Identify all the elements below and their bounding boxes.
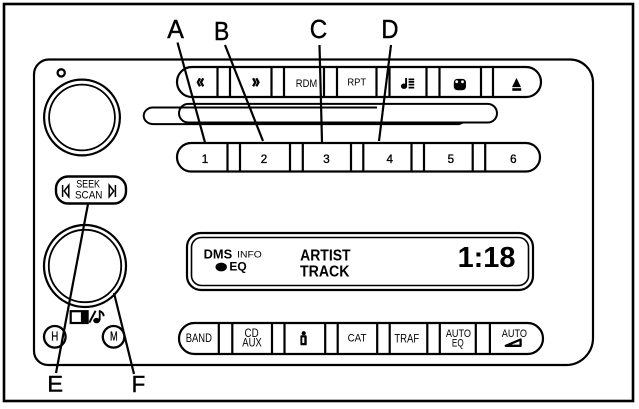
svg-text:A: A bbox=[167, 16, 184, 44]
svg-text:5: 5 bbox=[448, 153, 454, 166]
svg-text:BAND: BAND bbox=[186, 332, 212, 345]
svg-text:M: M bbox=[110, 330, 118, 344]
svg-text:DMS: DMS bbox=[204, 247, 233, 262]
svg-text:2: 2 bbox=[261, 153, 267, 166]
svg-text:RPT: RPT bbox=[347, 77, 366, 88]
svg-text:CAT: CAT bbox=[348, 333, 368, 345]
svg-text:TRACK: TRACK bbox=[300, 263, 350, 281]
svg-text:AUX: AUX bbox=[242, 337, 262, 350]
svg-text:1:18: 1:18 bbox=[458, 242, 516, 274]
svg-text:F: F bbox=[132, 370, 146, 397]
svg-text:4: 4 bbox=[386, 153, 393, 166]
svg-text:SCAN: SCAN bbox=[75, 190, 103, 202]
svg-text:H: H bbox=[51, 331, 58, 344]
svg-text:E: E bbox=[47, 371, 63, 396]
svg-text:6: 6 bbox=[510, 153, 516, 166]
svg-text:D: D bbox=[381, 16, 398, 44]
svg-text:3: 3 bbox=[323, 153, 329, 166]
svg-text:EQ: EQ bbox=[229, 259, 246, 273]
svg-text:1: 1 bbox=[202, 153, 208, 166]
svg-text:EQ: EQ bbox=[452, 337, 464, 349]
svg-text:B: B bbox=[214, 18, 229, 46]
svg-text:AUTO: AUTO bbox=[502, 328, 527, 340]
svg-text:C: C bbox=[310, 16, 327, 45]
svg-text:RDM: RDM bbox=[296, 78, 317, 90]
svg-text:TRAF: TRAF bbox=[394, 333, 419, 346]
